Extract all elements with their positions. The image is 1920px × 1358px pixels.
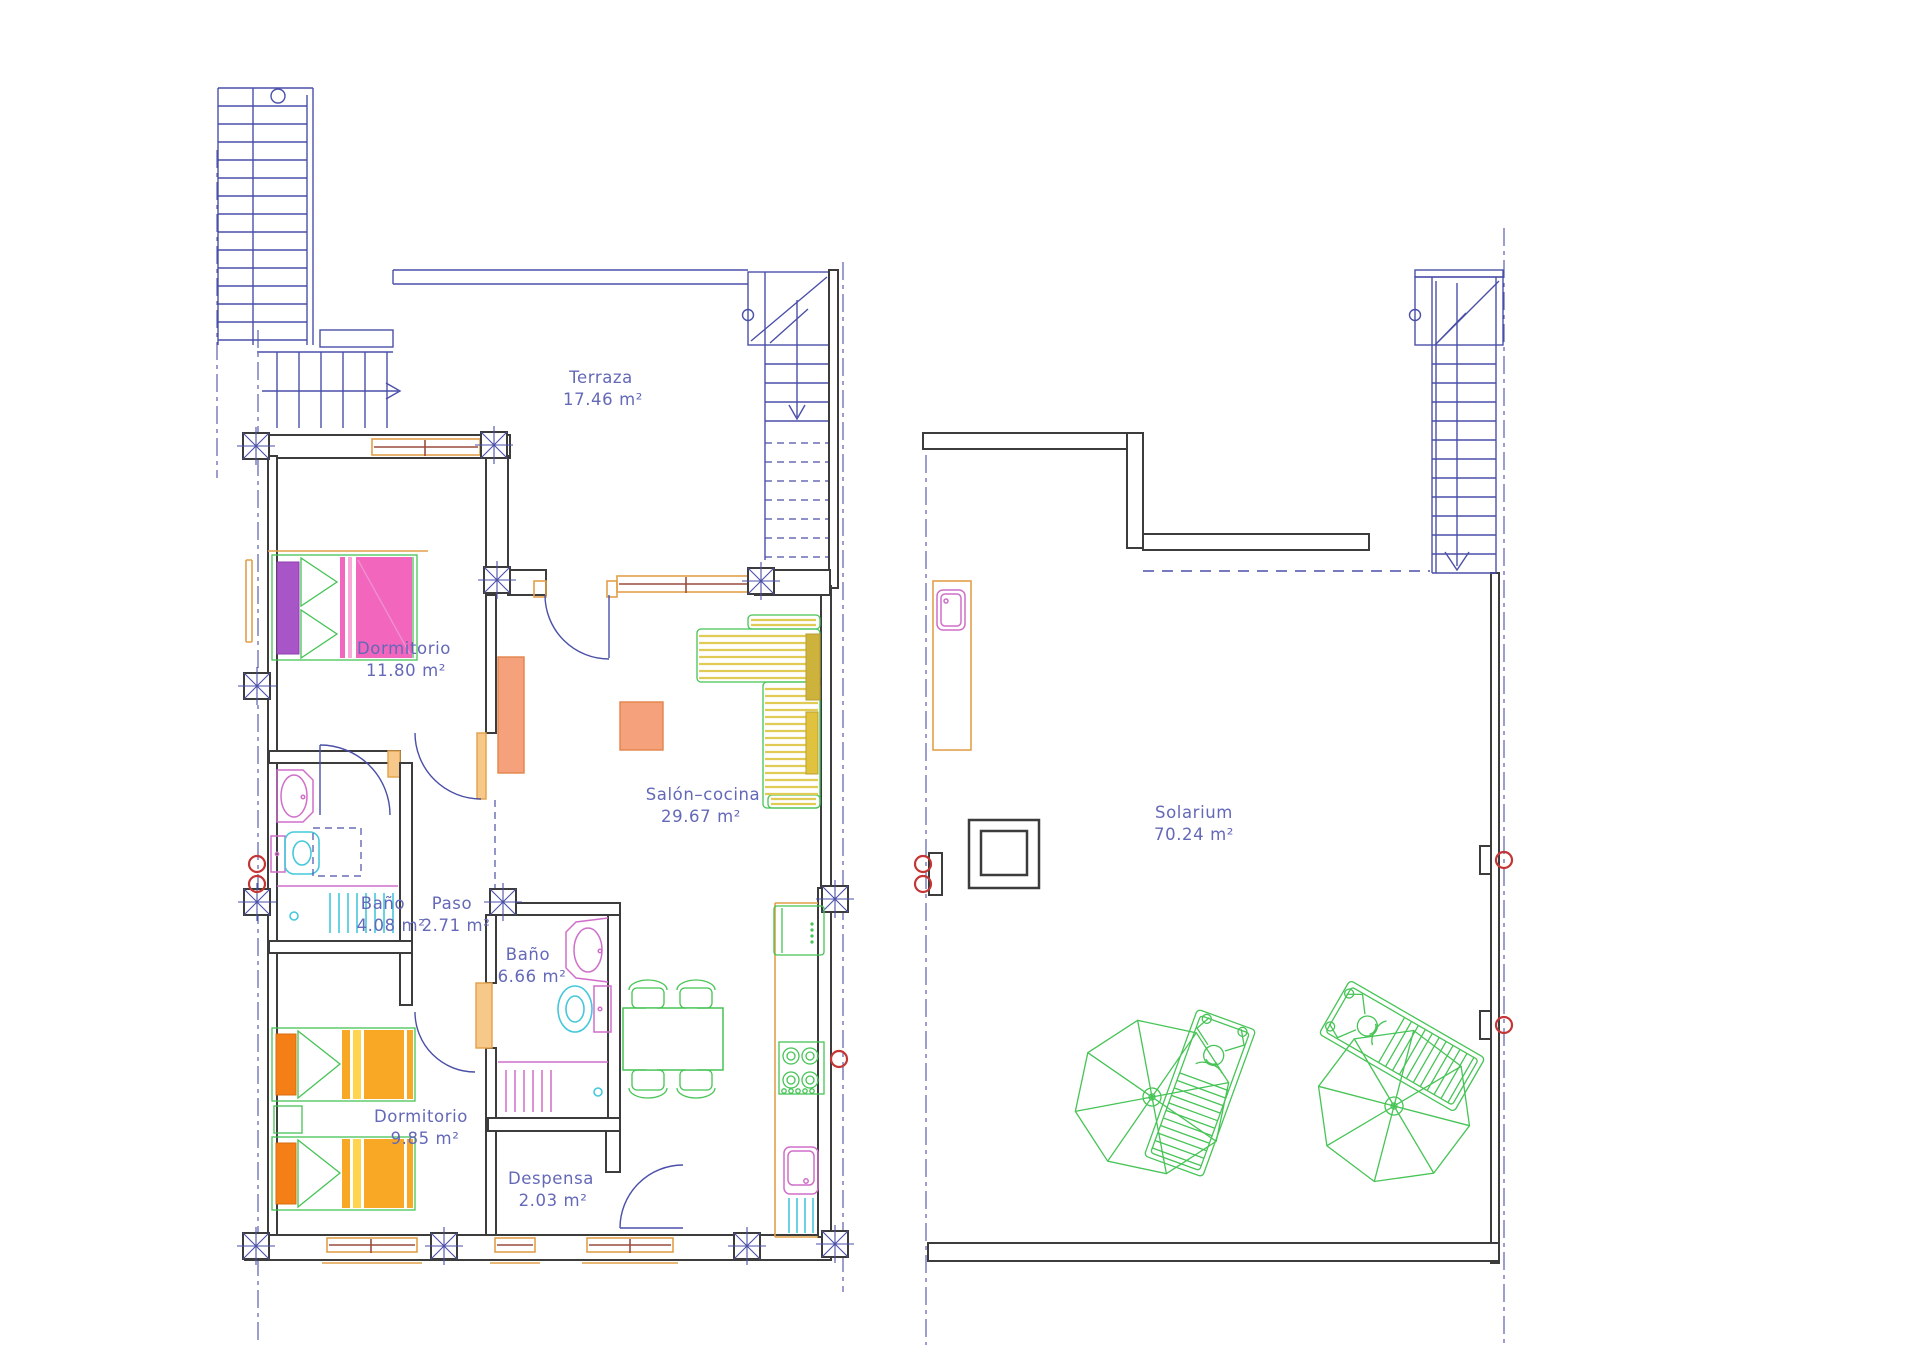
- columns: [237, 426, 854, 1265]
- room-label-dormitorio1: Dormitorio: [357, 639, 451, 658]
- kitchen-sink: [784, 1147, 818, 1233]
- room-label-bano2: Baño: [506, 945, 550, 964]
- room-area-bano1: 4.08 m²: [357, 916, 426, 935]
- coffee-table: [620, 702, 663, 750]
- room-area-paso: 2.71 m²: [422, 916, 491, 935]
- room-area-dormitorio2: 9.85 m²: [391, 1129, 460, 1148]
- apartment-plan: Terraza 17.46 m² Dormitorio 11.80 m² Sal…: [217, 88, 854, 1340]
- dining-table: [623, 980, 723, 1098]
- room-area-bano2: 6.66 m²: [498, 967, 567, 986]
- solarium-labels: Solarium 70.24 m²: [1154, 803, 1234, 844]
- room-label-despensa: Despensa: [508, 1169, 594, 1188]
- solarium-counter: [933, 581, 971, 750]
- room-label-dormitorio2: Dormitorio: [374, 1107, 468, 1126]
- toilet: [558, 986, 611, 1032]
- staircase-upper-left: [218, 88, 400, 428]
- construction-lines: [217, 150, 843, 1340]
- door-despensa: [620, 1165, 683, 1228]
- solarium-plan: Solarium 70.24 m²: [915, 228, 1512, 1345]
- room-area-salon-cocina: 29.67 m²: [661, 807, 741, 826]
- floor-plan-page: Terraza 17.46 m² Dormitorio 11.80 m² Sal…: [0, 0, 1920, 1358]
- window-left: [246, 560, 252, 642]
- room-label-bano1: Baño: [361, 894, 405, 913]
- sofa: [697, 615, 820, 808]
- room-label-paso: Paso: [432, 894, 472, 913]
- room-area-despensa: 2.03 m²: [519, 1191, 588, 1210]
- shower2: [498, 1062, 608, 1112]
- room-area-solarium: 70.24 m²: [1154, 825, 1234, 844]
- single-bed-1: [272, 1028, 415, 1101]
- parasol-1: [1067, 1012, 1238, 1183]
- staircase-solarium: [1410, 270, 1504, 573]
- door-salon-entrance: [545, 595, 609, 659]
- nightstand: [274, 1106, 302, 1133]
- terraza-parapet: [393, 270, 748, 284]
- floor-plan-canvas: Terraza 17.46 m² Dormitorio 11.80 m² Sal…: [0, 0, 1920, 1358]
- shower-screen: [313, 828, 361, 876]
- fridge: [774, 906, 824, 955]
- room-label-terraza: Terraza: [568, 368, 633, 387]
- washbasin: [277, 770, 313, 822]
- room-area-dormitorio1: 11.80 m²: [366, 661, 446, 680]
- apartment-labels: Terraza 17.46 m² Dormitorio 11.80 m² Sal…: [357, 368, 761, 1210]
- room-label-salon-cocina: Salón–cocina: [646, 785, 761, 804]
- sun-lounger-2: [1319, 980, 1485, 1112]
- wardrobe: [498, 657, 524, 773]
- door-dormitorio1: [415, 733, 486, 799]
- door-dormitorio2: [415, 983, 492, 1072]
- window-salon: [534, 576, 755, 597]
- counter-sink: [937, 590, 965, 630]
- kitchen: [774, 903, 824, 1237]
- staircase-terraza: [743, 272, 831, 560]
- washbasin2: [566, 918, 608, 982]
- room-area-terraza: 17.46 m²: [563, 390, 643, 409]
- bidet: [271, 832, 319, 874]
- room-label-solarium: Solarium: [1155, 803, 1233, 822]
- chimney: [969, 820, 1039, 888]
